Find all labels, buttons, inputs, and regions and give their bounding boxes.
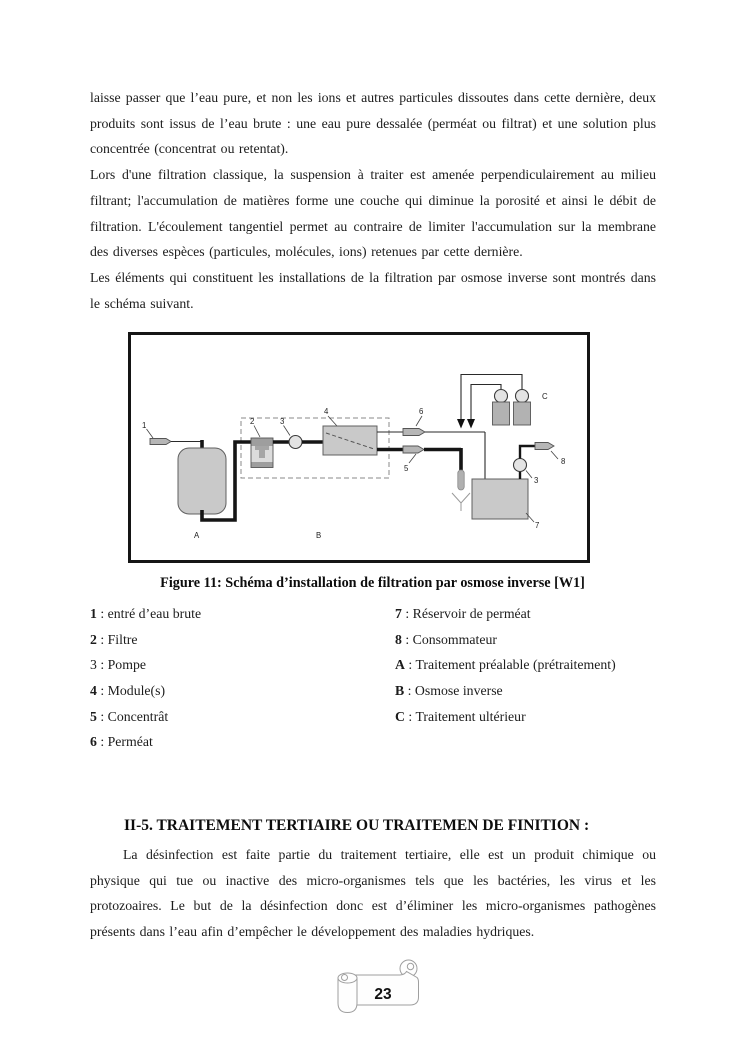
- page-number: 23: [374, 986, 392, 1003]
- body-text-top: laisse passer que l’eau pure, et non les…: [90, 85, 656, 316]
- label-4: 4: [324, 407, 329, 416]
- paragraph-1: laisse passer que l’eau pure, et non les…: [90, 85, 656, 162]
- drain-pipe: [458, 470, 464, 490]
- label-b: B: [316, 531, 321, 540]
- osmosis-figure: 1 A 2: [128, 332, 590, 563]
- scroll-banner-icon: 23: [330, 952, 430, 1022]
- legend-item: 6 : Perméat: [90, 729, 201, 755]
- chemical-tank: [493, 402, 510, 425]
- inlet-pipe-fitting: [150, 439, 171, 445]
- label-1: 1: [142, 421, 146, 430]
- legend-item: 8 : Consommateur: [395, 627, 616, 653]
- paragraph-3: Les éléments qui constituent les install…: [90, 265, 656, 316]
- label-3b: 3: [534, 476, 538, 485]
- pretreatment-tank: [178, 448, 226, 514]
- legend-item: C : Traitement ultérieur: [395, 704, 616, 730]
- label-7: 7: [535, 521, 539, 530]
- legend-item: 2 : Filtre: [90, 627, 201, 653]
- figure-caption: Figure 11: Schéma d’installation de filt…: [0, 575, 745, 592]
- legend-item: 5 : Concentrât: [90, 704, 201, 730]
- legend-item: 7 : Réservoir de perméat: [395, 601, 616, 627]
- legend-item: 1 : entré d’eau brute: [90, 601, 201, 627]
- osmosis-diagram: 1 A 2: [128, 332, 590, 563]
- document-page: laisse passer que l’eau pure, et non les…: [0, 0, 745, 1053]
- label-5: 5: [404, 464, 409, 473]
- paragraph-2: Lors d'une filtration classique, la susp…: [90, 162, 656, 265]
- dosing-pump-icon: [516, 390, 529, 403]
- label-a: A: [194, 531, 200, 540]
- legend-item: A : Traitement préalable (prétraitement): [395, 652, 616, 678]
- legend-item: 3 : Pompe: [90, 652, 201, 678]
- pump-icon: [289, 436, 302, 449]
- page-footer: 23: [330, 952, 430, 1027]
- section-paragraph: La désinfection est faite partie du trai…: [90, 842, 656, 945]
- legend-item: 4 : Module(s): [90, 678, 201, 704]
- figure-legend-left: 1 : entré d’eau brute 2 : Filtre 3 : Pom…: [90, 601, 201, 755]
- figure-legend-right: 7 : Réservoir de perméat 8 : Consommateu…: [395, 601, 616, 729]
- label-3: 3: [280, 417, 284, 426]
- legend-item: B : Osmose inverse: [395, 678, 616, 704]
- section-heading: II-5. TRAITEMENT TERTIAIRE OU TRAITEMEN …: [124, 817, 589, 835]
- dosing-pump-icon: [495, 390, 508, 403]
- pump-icon: [514, 459, 527, 472]
- chemical-tank: [514, 402, 531, 425]
- label-6: 6: [419, 407, 423, 416]
- label-2: 2: [250, 417, 254, 426]
- label-8: 8: [561, 457, 565, 466]
- label-c: C: [542, 392, 548, 401]
